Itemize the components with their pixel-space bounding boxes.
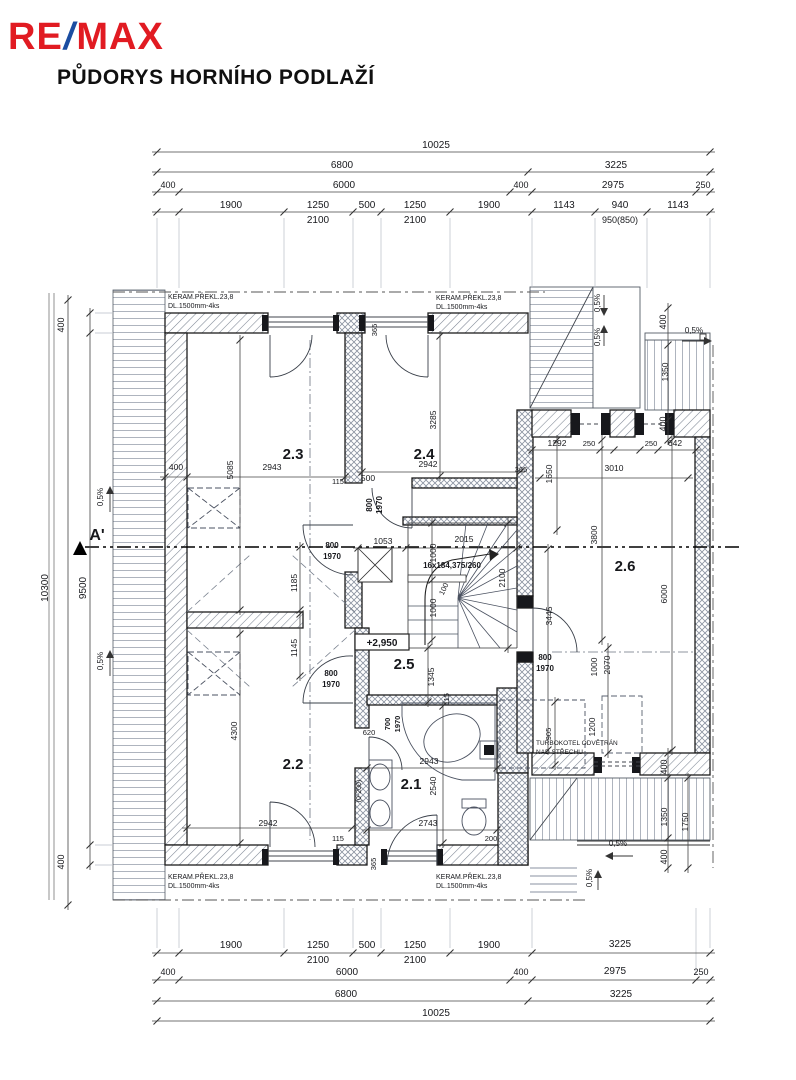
- svg-text:2070: 2070: [602, 655, 612, 674]
- svg-text:365: 365: [370, 324, 379, 337]
- svg-text:6800: 6800: [335, 989, 358, 1000]
- svg-text:905: 905: [544, 728, 553, 741]
- svg-text:+2,950: +2,950: [367, 638, 398, 649]
- svg-text:DL.1500mm-4ks: DL.1500mm-4ks: [168, 883, 220, 890]
- svg-text:400: 400: [659, 759, 669, 774]
- svg-text:2100: 2100: [497, 568, 507, 587]
- svg-text:1292: 1292: [548, 438, 567, 448]
- svg-text:1145: 1145: [289, 639, 299, 658]
- chimney-shaft: [358, 548, 392, 582]
- svg-text:DL.1500mm-4ks: DL.1500mm-4ks: [168, 303, 220, 310]
- svg-text:1250: 1250: [404, 940, 427, 951]
- svg-text:700: 700: [383, 718, 392, 731]
- svg-text:1200: 1200: [587, 717, 597, 736]
- svg-text:1650: 1650: [544, 464, 554, 483]
- svg-text:1350: 1350: [660, 362, 670, 381]
- svg-text:1970: 1970: [375, 496, 384, 514]
- svg-text:DL.1500mm-4ks: DL.1500mm-4ks: [436, 304, 488, 311]
- top-right-balcony: [645, 333, 712, 410]
- svg-text:400: 400: [513, 967, 528, 977]
- svg-text:3225: 3225: [610, 989, 633, 1000]
- svg-text:KERAM.PŘEKL.23,8: KERAM.PŘEKL.23,8: [436, 293, 501, 302]
- svg-text:1970: 1970: [536, 664, 554, 673]
- svg-text:1345: 1345: [426, 667, 436, 686]
- svg-text:800: 800: [325, 541, 339, 550]
- svg-text:3445: 3445: [544, 606, 554, 625]
- svg-text:0,5%: 0,5%: [685, 326, 703, 335]
- svg-text:10025: 10025: [422, 1008, 450, 1019]
- top-right-roof: [530, 287, 640, 408]
- svg-text:250: 250: [645, 439, 658, 448]
- svg-text:642: 642: [668, 438, 682, 448]
- svg-text:1350: 1350: [659, 807, 669, 826]
- svg-text:400: 400: [160, 180, 175, 190]
- svg-text:400: 400: [160, 967, 175, 977]
- svg-text:2943: 2943: [263, 462, 282, 472]
- svg-text:115: 115: [332, 834, 344, 843]
- washbasin: [370, 800, 390, 826]
- svg-text:KERAM.PŘEKL.23,8: KERAM.PŘEKL.23,8: [168, 292, 233, 301]
- svg-text:2100: 2100: [404, 955, 427, 966]
- svg-text:A': A': [89, 527, 104, 544]
- svg-text:2100: 2100: [307, 955, 330, 966]
- svg-text:(0-200): (0-200): [356, 780, 363, 803]
- svg-text:NAD STŘECHU: NAD STŘECHU: [536, 747, 583, 756]
- svg-text:940: 940: [612, 200, 629, 211]
- svg-text:3225: 3225: [605, 160, 628, 171]
- svg-text:400: 400: [658, 314, 668, 329]
- floor-plan-page: RE/MAX PŮDORYS HORNÍHO PODLAŽÍ: [0, 0, 796, 1080]
- svg-text:2540: 2540: [428, 776, 438, 795]
- svg-text:3225: 3225: [609, 939, 632, 950]
- svg-text:6000: 6000: [336, 967, 359, 978]
- svg-text:2943: 2943: [420, 756, 439, 766]
- svg-text:5085: 5085: [225, 460, 235, 479]
- svg-text:1970: 1970: [393, 716, 402, 733]
- svg-text:1143: 1143: [667, 200, 689, 211]
- svg-text:0,5%: 0,5%: [609, 839, 627, 848]
- svg-text:2.6: 2.6: [615, 558, 636, 575]
- svg-text:620: 620: [363, 728, 376, 737]
- svg-text:2975: 2975: [602, 180, 625, 191]
- svg-text:1000: 1000: [428, 543, 438, 562]
- svg-text:1900: 1900: [220, 200, 243, 211]
- svg-text:KERAM.PŘEKL.23,8: KERAM.PŘEKL.23,8: [168, 872, 233, 881]
- svg-text:3010: 3010: [605, 463, 624, 473]
- svg-text:400: 400: [169, 462, 183, 472]
- svg-text:2.1: 2.1: [401, 776, 422, 793]
- svg-text:2975: 2975: [604, 966, 627, 977]
- svg-text:2100: 2100: [404, 215, 427, 226]
- svg-text:0,5%: 0,5%: [96, 652, 105, 670]
- svg-text:1970: 1970: [323, 552, 341, 561]
- svg-text:500: 500: [359, 940, 376, 951]
- dormer-windows: [188, 488, 240, 695]
- svg-text:400: 400: [56, 854, 66, 869]
- floor-plan-drawing: 1002568003225400600040029752501900125050…: [0, 0, 796, 1080]
- svg-text:1250: 1250: [404, 200, 427, 211]
- svg-text:800: 800: [538, 653, 552, 662]
- svg-text:2743: 2743: [419, 818, 438, 828]
- bottom-right-roof: [530, 778, 710, 892]
- svg-text:365: 365: [369, 858, 378, 871]
- svg-text:500: 500: [361, 473, 375, 483]
- svg-text:DL.1500mm-4ks: DL.1500mm-4ks: [436, 883, 488, 890]
- svg-text:1250: 1250: [307, 200, 330, 211]
- svg-text:400: 400: [56, 317, 66, 332]
- svg-text:1185: 1185: [289, 574, 299, 593]
- left-terrace: [49, 290, 165, 900]
- stair-direction-arrow-icon: [489, 549, 499, 561]
- svg-text:6000: 6000: [659, 584, 669, 603]
- svg-text:100: 100: [437, 581, 450, 596]
- svg-text:10300: 10300: [40, 574, 51, 602]
- svg-text:1143: 1143: [553, 200, 575, 211]
- svg-text:400: 400: [658, 416, 668, 431]
- svg-text:3800: 3800: [589, 525, 599, 544]
- svg-text:250: 250: [583, 439, 596, 448]
- svg-text:6000: 6000: [333, 180, 356, 191]
- svg-text:0,5%: 0,5%: [96, 488, 105, 506]
- svg-text:3285: 3285: [428, 410, 438, 429]
- svg-text:2.2: 2.2: [283, 756, 304, 773]
- svg-text:1250: 1250: [307, 940, 330, 951]
- svg-text:115: 115: [442, 693, 451, 705]
- svg-text:250: 250: [695, 180, 710, 190]
- svg-text:2942: 2942: [259, 818, 278, 828]
- svg-text:4300: 4300: [229, 721, 239, 740]
- svg-text:1000: 1000: [428, 598, 438, 617]
- svg-text:800: 800: [324, 669, 338, 678]
- svg-text:1750: 1750: [680, 812, 690, 831]
- svg-text:1900: 1900: [478, 200, 501, 211]
- svg-text:2942: 2942: [419, 459, 438, 469]
- svg-text:2100: 2100: [307, 215, 330, 226]
- svg-text:400: 400: [513, 180, 528, 190]
- svg-text:1053: 1053: [374, 536, 393, 546]
- svg-text:2015: 2015: [455, 534, 474, 544]
- svg-text:1970: 1970: [322, 680, 340, 689]
- svg-text:0,5%: 0,5%: [585, 869, 594, 887]
- svg-text:400: 400: [659, 849, 669, 864]
- svg-text:1900: 1900: [478, 940, 501, 951]
- svg-text:800: 800: [365, 498, 374, 512]
- svg-text:500: 500: [359, 200, 376, 211]
- svg-text:2.3: 2.3: [283, 446, 304, 463]
- svg-text:115: 115: [332, 477, 344, 486]
- svg-text:950(850): 950(850): [602, 215, 638, 225]
- svg-text:200: 200: [485, 834, 498, 843]
- section-arrow-icon: [73, 541, 87, 555]
- svg-text:6800: 6800: [331, 160, 354, 171]
- svg-text:0,5%: 0,5%: [593, 328, 602, 346]
- svg-text:250: 250: [693, 967, 708, 977]
- svg-text:0,5%: 0,5%: [593, 294, 602, 312]
- svg-text:KERAM.PŘEKL.23,8: KERAM.PŘEKL.23,8: [436, 872, 501, 881]
- svg-text:1000: 1000: [589, 657, 599, 676]
- svg-text:10025: 10025: [422, 140, 450, 151]
- svg-text:365: 365: [515, 465, 528, 474]
- toilet-bowl: [462, 807, 486, 835]
- svg-text:9500: 9500: [78, 576, 89, 599]
- svg-text:1900: 1900: [220, 940, 243, 951]
- svg-text:2.5: 2.5: [394, 656, 415, 673]
